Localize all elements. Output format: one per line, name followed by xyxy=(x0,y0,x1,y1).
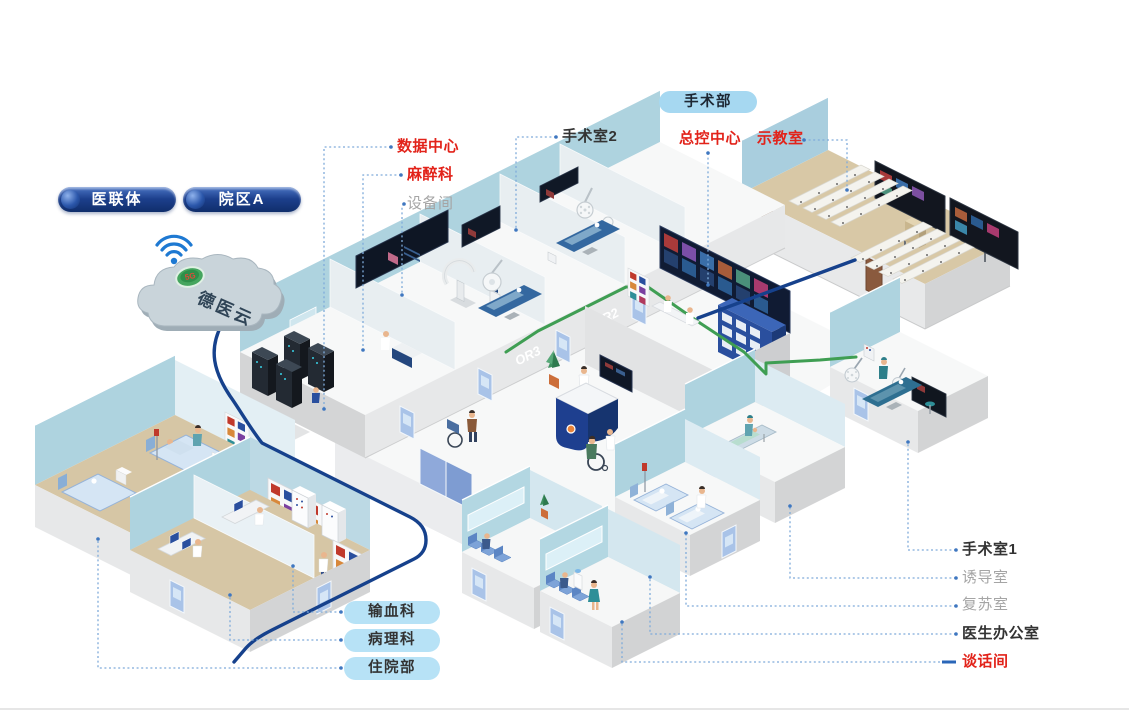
leader-or1 xyxy=(908,442,956,550)
inpatient-pill: 住院部 xyxy=(344,657,440,680)
pathology-pill: 病理科 xyxy=(344,629,440,652)
callout-equipment-room: 设备间 xyxy=(407,196,454,211)
callout-anesthesiology: 麻醉科 xyxy=(407,167,454,182)
leader-induction xyxy=(790,506,956,578)
callout-data-center: 数据中心 xyxy=(397,139,459,154)
hospital-isometric-diagram: OR3 OR2 xyxy=(0,0,1129,721)
callout-operating-room-2: 手术室2 xyxy=(562,129,617,144)
blood-transfusion-pill: 输血科 xyxy=(344,601,440,624)
cloud: 德医云 5G xyxy=(138,255,285,332)
illustration-svg: OR3 OR2 xyxy=(0,0,1129,721)
tab-campus-a[interactable]: 院区A xyxy=(183,187,301,212)
footer-divider xyxy=(0,708,1129,710)
callout-operating-room-1: 手术室1 xyxy=(962,542,1017,557)
callout-induction-room: 诱导室 xyxy=(962,570,1009,585)
callout-demonstration-room: 示教室 xyxy=(757,131,804,146)
callout-talk-room: 谈话间 xyxy=(962,654,1009,669)
callout-master-control-center: 总控中心 xyxy=(679,131,741,146)
surgery-department-pill: 手术部 xyxy=(659,91,757,113)
callout-doctors-office: 医生办公室 xyxy=(962,626,1040,641)
tab-medical-alliance[interactable]: 医联体 xyxy=(58,187,176,212)
callout-recovery-room: 复苏室 xyxy=(962,597,1009,612)
